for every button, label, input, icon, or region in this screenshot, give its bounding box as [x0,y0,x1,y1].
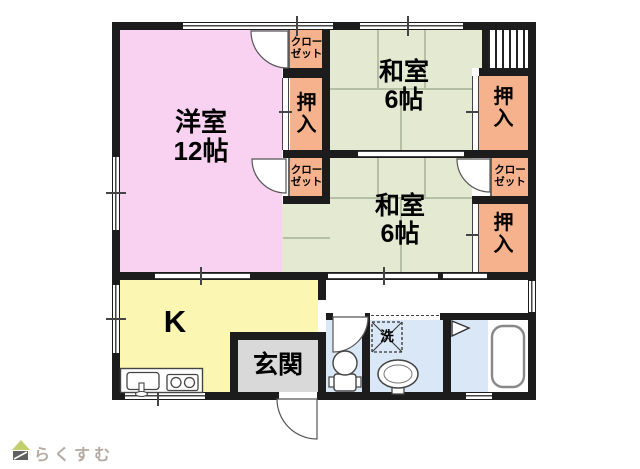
japanese-room-1-label: 和室 6帖 [356,58,452,114]
washer-label: 洗 [374,329,400,344]
window-tick [466,111,479,113]
logo-house-icon [12,440,30,460]
window-tick [106,192,126,194]
window-tick [157,387,159,406]
sliding-door-washitsu1-2 [358,151,464,157]
wall-tokonoma-bottom [479,68,528,76]
bathtub-platform [488,320,528,392]
wall-entrance-top [230,332,326,340]
bathroom [451,320,488,392]
japanese-room-1-corner [472,30,482,68]
toilet-door-opening [333,313,365,320]
window-hall-right [529,281,535,312]
wall-washroom-right [443,320,451,392]
tatami-line [283,237,330,239]
oshiire-mid-label: 押入 [294,92,319,137]
kitchen-label: K [150,305,200,340]
washroom-opening-dashed [371,315,439,317]
wall-kitchen-hall-upper [318,280,326,300]
closet-top-label: クローゼット [289,37,324,61]
hallway [326,280,528,313]
closet-right-label: クローゼット [492,165,528,189]
window-top-east [360,23,463,29]
wall-toilet-right [362,320,370,392]
front-door-opening [279,392,317,400]
window-tick [383,267,385,285]
window-tick [279,111,292,113]
window-tick [106,318,126,320]
sliding-door-oshiire-bottom-right [472,204,479,272]
wall-entrance-left [230,332,238,392]
wall-closet-right-bottom [472,196,528,204]
logo-text: らくすむ [34,441,114,465]
window-tick [407,16,409,36]
door-arc-entrance [277,399,317,439]
oshiire-bottom-right-label: 押入 [491,212,516,257]
sliding-door-washitsu2-hall-b [443,273,487,279]
sliding-door-western-kitchen [155,273,250,279]
oshiire-top-right-label: 押入 [491,86,516,131]
wall-kitchen-hall-lower [318,332,326,392]
toilet-room [326,320,362,392]
sliding-door-oshiire-mid [282,78,289,150]
entrance-label: 玄関 [238,351,318,379]
tokonoma-hatch [488,30,528,68]
window-bottom-bath [466,393,492,399]
window-bottom-kitchen [125,393,205,399]
japanese-room-2-label: 和室 6帖 [352,192,448,248]
window-tick [466,234,479,236]
window-tick [296,16,298,36]
western-room-label: 洋室 12帖 [151,108,251,166]
outer-wall-right [528,22,536,400]
window-tick [200,267,202,285]
window-top-west [183,23,333,29]
sliding-door-oshiire-top-right [472,76,479,150]
closet-mid-label: クローゼット [289,165,324,189]
